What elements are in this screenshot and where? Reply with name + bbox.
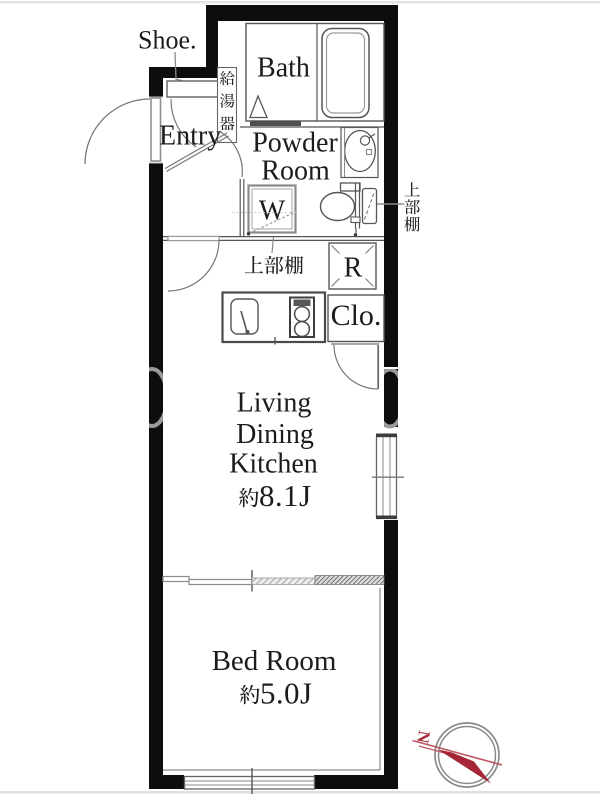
svg-text:Bed Room: Bed Room: [212, 645, 337, 677]
svg-text:Powder: Powder: [252, 128, 338, 159]
svg-text:Kitchen: Kitchen: [229, 449, 318, 480]
svg-text:Shoe.: Shoe.: [138, 26, 197, 55]
svg-text:Room: Room: [261, 156, 330, 187]
svg-text:8.1J: 8.1J: [259, 478, 311, 513]
svg-text:Living: Living: [237, 388, 312, 419]
svg-text:Entry: Entry: [159, 121, 221, 152]
svg-text:Dining: Dining: [236, 419, 314, 450]
svg-text:Clo.: Clo.: [331, 299, 382, 332]
svg-text:5.0J: 5.0J: [260, 676, 312, 711]
svg-text:R: R: [344, 253, 363, 284]
svg-text:W: W: [259, 196, 286, 227]
svg-text:Bath: Bath: [257, 53, 310, 84]
